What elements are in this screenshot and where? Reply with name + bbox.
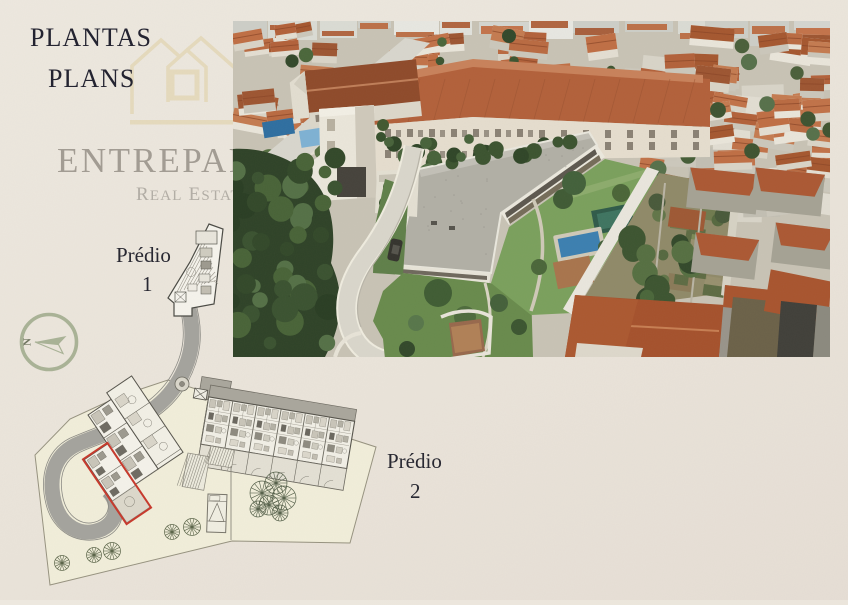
svg-text:N: N	[22, 338, 34, 346]
